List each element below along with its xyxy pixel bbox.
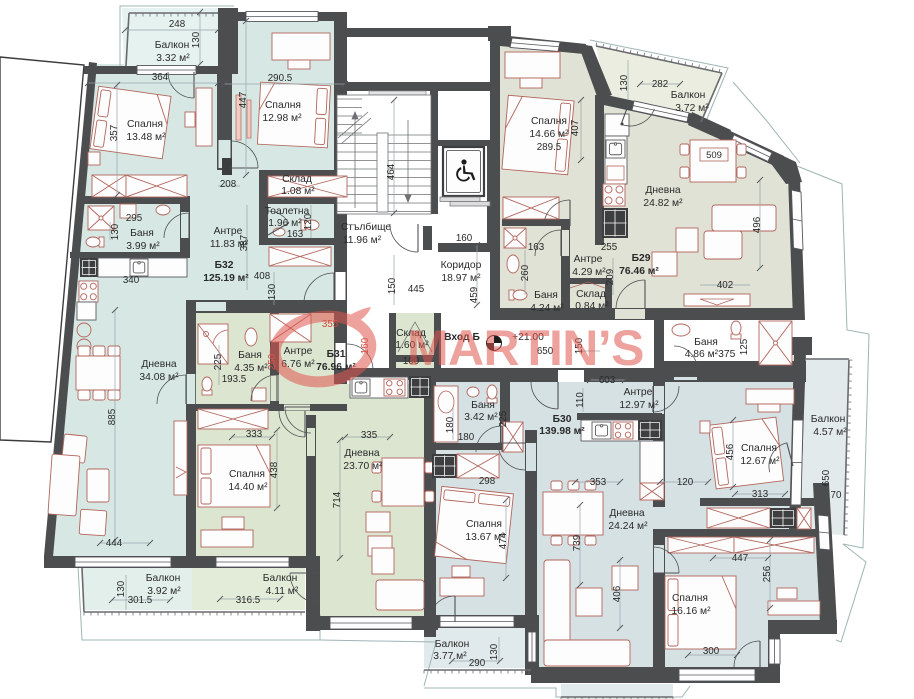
svg-text:24.24 м²: 24.24 м² (608, 521, 648, 532)
svg-text:160: 160 (456, 233, 473, 244)
svg-text:447: 447 (732, 553, 748, 564)
svg-text:459: 459 (469, 287, 480, 303)
svg-text:447: 447 (238, 92, 249, 108)
svg-text:150: 150 (387, 277, 398, 294)
svg-text:Б29: Б29 (632, 253, 651, 264)
svg-text:Антре: Антре (284, 346, 313, 357)
svg-text:248: 248 (169, 19, 186, 30)
svg-text:Спалня: Спалня (672, 593, 708, 604)
svg-text:130: 130 (619, 74, 630, 91)
svg-text:3.72 м²: 3.72 м² (675, 103, 709, 114)
svg-text:364: 364 (152, 72, 169, 83)
svg-text:3.42 м²: 3.42 м² (464, 412, 498, 423)
svg-text:353: 353 (590, 477, 607, 488)
svg-text:3.99 м²: 3.99 м² (126, 241, 160, 252)
svg-text:260: 260 (520, 264, 531, 281)
svg-text:Балкон: Балкон (155, 40, 190, 51)
svg-text:496: 496 (752, 216, 763, 233)
svg-text:295: 295 (126, 213, 143, 224)
svg-text:180: 180 (458, 432, 475, 443)
svg-text:Б31: Б31 (327, 349, 346, 360)
svg-text:298: 298 (479, 476, 496, 487)
svg-text:209: 209 (605, 269, 616, 285)
svg-text:34.08 м²: 34.08 м² (139, 372, 179, 383)
svg-text:110: 110 (575, 392, 586, 408)
svg-text:Склад: Склад (282, 174, 312, 185)
svg-text:Антре: Антре (574, 254, 603, 265)
svg-text:300: 300 (703, 646, 720, 657)
svg-text:407: 407 (570, 120, 581, 136)
svg-text:14.40 м²: 14.40 м² (228, 482, 268, 493)
svg-text:139.98 м²: 139.98 м² (539, 426, 585, 437)
svg-text:24.82 м²: 24.82 м² (643, 198, 683, 209)
svg-text:Дневна: Дневна (645, 185, 681, 196)
svg-text:885: 885 (107, 408, 118, 425)
svg-text:12.97 м²: 12.97 м² (619, 400, 659, 411)
svg-text:Балкон: Балкон (263, 573, 298, 584)
svg-text:Балкон: Балкон (146, 573, 181, 584)
svg-text:3.32 м²: 3.32 м² (156, 53, 190, 64)
svg-text:Дневна: Дневна (609, 508, 645, 519)
svg-text:445: 445 (408, 284, 425, 295)
svg-text:438: 438 (269, 461, 280, 478)
svg-text:18.97 м²: 18.97 м² (441, 273, 481, 284)
svg-text:208: 208 (220, 179, 237, 190)
svg-text:130: 130 (116, 580, 127, 597)
svg-text:387: 387 (239, 235, 250, 251)
svg-text:289.5: 289.5 (537, 142, 562, 153)
svg-text:290: 290 (469, 658, 486, 669)
svg-text:130: 130 (267, 283, 278, 300)
svg-text:Спалня: Спалня (741, 443, 777, 454)
svg-text:4.24 м²: 4.24 м² (530, 303, 564, 314)
svg-text:Спалня: Спалня (127, 119, 163, 130)
svg-text:4.29 м²: 4.29 м² (572, 267, 606, 278)
svg-text:Б30: Б30 (553, 414, 572, 425)
svg-text:650: 650 (821, 469, 832, 486)
svg-text:316.5: 316.5 (236, 595, 261, 606)
svg-text:Балкон: Балкон (671, 90, 706, 101)
svg-text:130: 130 (191, 31, 202, 48)
svg-text:Баня: Баня (471, 400, 495, 411)
svg-text:193.5: 193.5 (222, 374, 247, 385)
svg-text:76.46 м²: 76.46 м² (619, 266, 659, 277)
svg-text:Спалня: Спалня (265, 100, 301, 111)
svg-text:Баня: Баня (694, 337, 718, 348)
svg-text:225: 225 (213, 353, 224, 370)
svg-text:509: 509 (706, 150, 722, 161)
svg-text:163: 163 (528, 242, 545, 253)
svg-text:3.92 м²: 3.92 м² (147, 586, 181, 597)
svg-text:333: 333 (246, 429, 263, 440)
svg-text:125.19 м²: 125.19 м² (203, 273, 249, 284)
svg-text:Балкон: Балкон (811, 414, 846, 425)
svg-text:120: 120 (303, 213, 314, 230)
svg-text:130: 130 (110, 223, 121, 240)
svg-text:14.66 м²: 14.66 м² (529, 129, 569, 140)
svg-text:340: 340 (123, 275, 140, 286)
svg-text:Стълбище: Стълбище (341, 221, 392, 233)
svg-text:357: 357 (109, 125, 120, 141)
svg-text:Коридор: Коридор (441, 260, 482, 271)
svg-text:1.08 м²: 1.08 м² (281, 186, 315, 197)
svg-text:0.84 м²: 0.84 м² (575, 301, 609, 312)
svg-text:Склад: Склад (576, 289, 606, 300)
svg-text:Баня: Баня (534, 290, 558, 301)
svg-text:408: 408 (254, 271, 271, 282)
svg-text:125: 125 (739, 338, 750, 355)
svg-text:603: 603 (599, 375, 616, 386)
svg-text:13.48 м²: 13.48 м² (126, 132, 166, 143)
svg-text:474: 474 (498, 532, 509, 549)
svg-text:4.35 м²: 4.35 м² (234, 363, 268, 374)
svg-text:130: 130 (489, 643, 500, 660)
svg-text:12.98 м²: 12.98 м² (262, 113, 302, 124)
svg-text:Балкон: Балкон (435, 639, 470, 650)
svg-text:70: 70 (831, 490, 842, 501)
svg-text:11.96 м²: 11.96 м² (343, 235, 382, 246)
svg-text:16.16 м²: 16.16 м² (671, 606, 711, 617)
svg-text:739: 739 (572, 535, 583, 551)
svg-text:163: 163 (287, 229, 304, 240)
svg-text:Баня: Баня (238, 350, 262, 361)
svg-text:256: 256 (762, 565, 773, 582)
svg-text:290.5: 290.5 (268, 73, 293, 84)
svg-text:335: 335 (361, 430, 378, 441)
svg-text:402: 402 (717, 280, 733, 291)
svg-text:4.57 м²: 4.57 м² (813, 427, 847, 438)
svg-text:23.70 м²: 23.70 м² (343, 461, 383, 472)
svg-text:456: 456 (725, 443, 736, 460)
svg-text:714: 714 (332, 491, 343, 508)
svg-text:4.86 м²375: 4.86 м²375 (685, 349, 736, 360)
svg-text:Баня: Баня (130, 228, 154, 239)
svg-text:Дневна: Дневна (141, 359, 177, 370)
svg-text:444: 444 (106, 538, 123, 549)
svg-text:255: 255 (601, 242, 618, 253)
svg-text:120: 120 (677, 477, 694, 488)
svg-text:301.5: 301.5 (128, 595, 153, 606)
svg-text:12.67 м²: 12.67 м² (740, 456, 780, 467)
svg-text:Б32: Б32 (215, 260, 234, 271)
svg-text:MARTIN’S: MARTIN’S (407, 320, 644, 376)
svg-text:Спалня: Спалня (466, 519, 502, 530)
svg-text:180: 180 (445, 416, 456, 433)
svg-text:1.96 м²: 1.96 м² (268, 218, 302, 229)
svg-text:464: 464 (386, 163, 397, 180)
svg-text:406: 406 (612, 585, 623, 602)
svg-text:282: 282 (652, 79, 668, 90)
svg-text:313: 313 (752, 489, 769, 500)
svg-text:Дневна: Дневна (344, 448, 380, 459)
svg-text:225: 225 (498, 410, 509, 427)
svg-text:3.77 м²: 3.77 м² (433, 651, 467, 662)
svg-text:Спалня: Спалня (531, 116, 567, 127)
svg-text:Антре: Антре (624, 387, 653, 398)
svg-text:Спалня: Спалня (229, 469, 265, 480)
svg-text:4.11 м²: 4.11 м² (266, 586, 299, 597)
